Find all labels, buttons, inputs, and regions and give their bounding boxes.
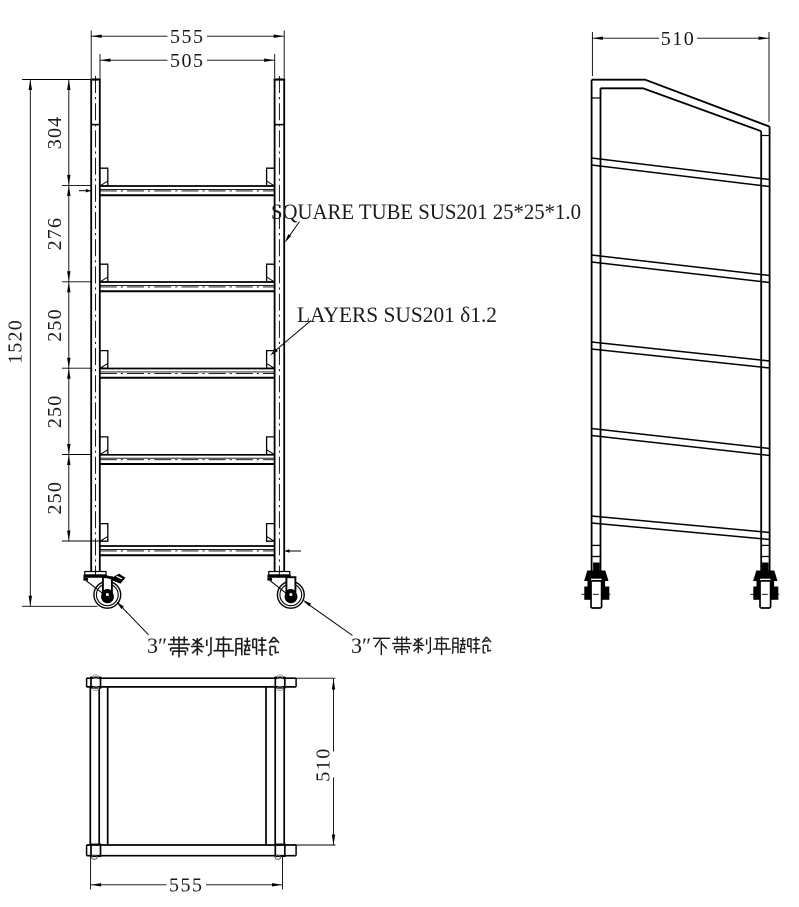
svg-text:250: 250: [44, 395, 66, 429]
svg-text:3″: 3″: [147, 633, 167, 658]
svg-text:276: 276: [44, 217, 66, 251]
svg-text:1520: 1520: [5, 319, 27, 364]
svg-text:3″: 3″: [351, 633, 371, 658]
svg-text:555: 555: [169, 875, 204, 897]
svg-text:250: 250: [44, 481, 66, 515]
svg-text:505: 505: [170, 50, 205, 72]
svg-text:250: 250: [44, 308, 66, 342]
svg-text:510: 510: [661, 28, 696, 50]
svg-text:510: 510: [312, 747, 334, 782]
svg-text:LAYERS SUS201 δ1.2: LAYERS SUS201 δ1.2: [297, 302, 497, 327]
svg-text:SQUARE TUBE SUS201 25*25*1.0: SQUARE TUBE SUS201 25*25*1.0: [271, 199, 581, 224]
svg-text:555: 555: [170, 26, 205, 48]
svg-text:304: 304: [44, 116, 66, 150]
